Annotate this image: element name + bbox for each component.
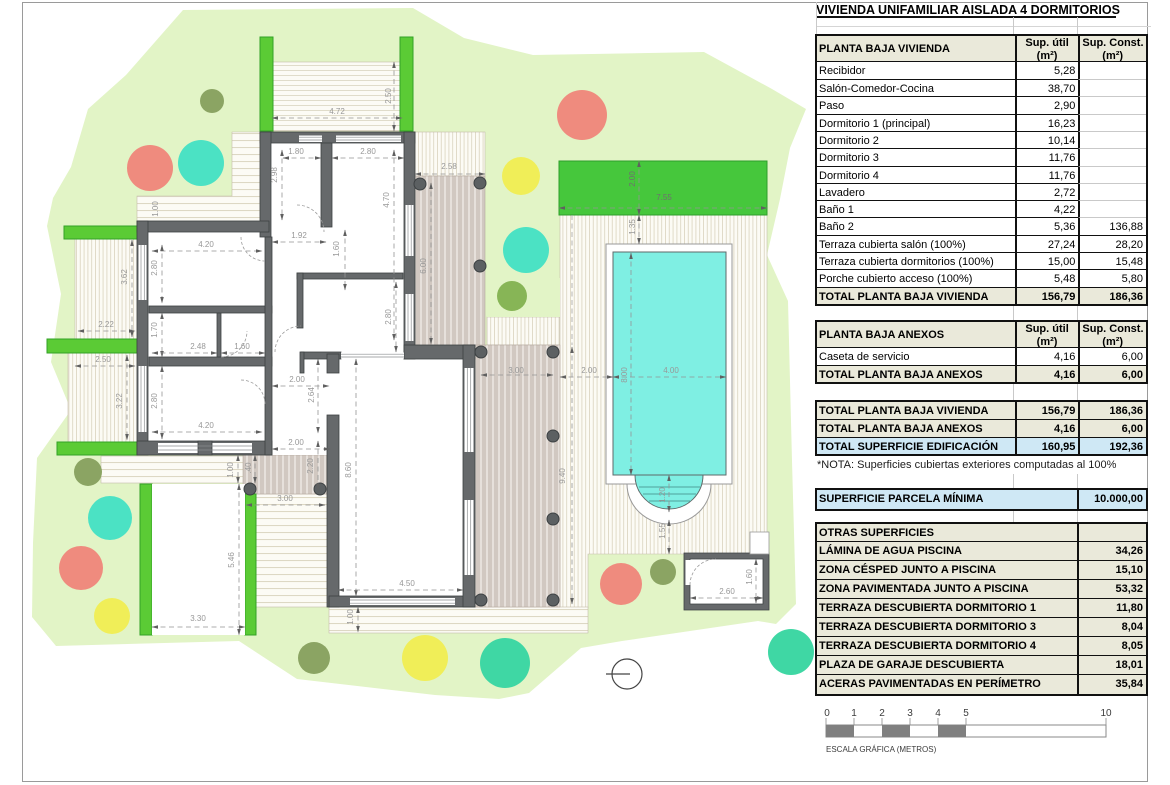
svg-text:2.58: 2.58 [441, 162, 457, 171]
svg-text:2.64: 2.64 [307, 387, 316, 403]
svg-text:3.22: 3.22 [115, 393, 124, 409]
svg-text:3.30: 3.30 [190, 614, 206, 623]
svg-text:1.00: 1.00 [346, 609, 355, 625]
svg-text:1.80: 1.80 [288, 147, 304, 156]
svg-text:9.40: 9.40 [558, 468, 567, 484]
svg-text:4.72: 4.72 [329, 107, 345, 116]
svg-text:1.20: 1.20 [658, 487, 667, 503]
svg-text:1.60: 1.60 [234, 342, 250, 351]
svg-text:4.20: 4.20 [198, 421, 214, 430]
svg-text:2.60: 2.60 [719, 587, 735, 596]
svg-text:2.80: 2.80 [360, 147, 376, 156]
svg-text:8.60: 8.60 [344, 462, 353, 478]
svg-text:2.98: 2.98 [270, 167, 279, 183]
svg-text:2.80: 2.80 [150, 393, 159, 409]
svg-text:4.50: 4.50 [399, 579, 415, 588]
svg-text:3.00: 3.00 [508, 366, 524, 375]
svg-text:.40: .40 [244, 462, 253, 474]
svg-text:3.00: 3.00 [277, 494, 293, 503]
svg-text:4.00: 4.00 [663, 366, 679, 375]
svg-text:1.00: 1.00 [151, 201, 160, 217]
svg-text:2.00: 2.00 [288, 438, 304, 447]
svg-text:8.00: 8.00 [620, 367, 629, 383]
svg-text:10: 10 [1100, 708, 1112, 719]
svg-text:2.50: 2.50 [384, 88, 393, 104]
svg-text:2.50: 2.50 [95, 355, 111, 364]
svg-text:2.80: 2.80 [150, 260, 159, 276]
svg-text:3: 3 [907, 708, 913, 719]
svg-text:2.00: 2.00 [581, 366, 597, 375]
svg-text:3.62: 3.62 [120, 269, 129, 285]
svg-text:2.00: 2.00 [628, 171, 637, 187]
svg-text:4.20: 4.20 [198, 240, 214, 249]
svg-text:2.00: 2.00 [289, 375, 305, 384]
svg-text:2: 2 [879, 708, 885, 719]
svg-text:5: 5 [963, 708, 969, 719]
svg-text:1.55: 1.55 [658, 523, 667, 539]
svg-text:1.70: 1.70 [150, 322, 159, 338]
svg-text:1.35: 1.35 [628, 219, 637, 235]
svg-text:2.48: 2.48 [190, 342, 206, 351]
svg-text:6.00: 6.00 [419, 258, 428, 274]
svg-text:4.70: 4.70 [382, 192, 391, 208]
svg-text:7.55: 7.55 [656, 193, 672, 202]
svg-text:1: 1 [851, 708, 857, 719]
svg-text:1.92: 1.92 [291, 231, 307, 240]
svg-text:1.60: 1.60 [332, 241, 341, 257]
svg-text:0: 0 [824, 708, 830, 719]
svg-text:2.22: 2.22 [98, 320, 114, 329]
svg-text:2.80: 2.80 [384, 309, 393, 325]
svg-text:5.46: 5.46 [227, 552, 236, 568]
svg-text:4: 4 [935, 708, 941, 719]
svg-text:1.60: 1.60 [745, 569, 754, 585]
svg-text:2.20: 2.20 [306, 458, 315, 474]
svg-text:1.00: 1.00 [226, 462, 235, 478]
svg-text:ESCALA GRÁFICA (METROS): ESCALA GRÁFICA (METROS) [826, 745, 937, 754]
